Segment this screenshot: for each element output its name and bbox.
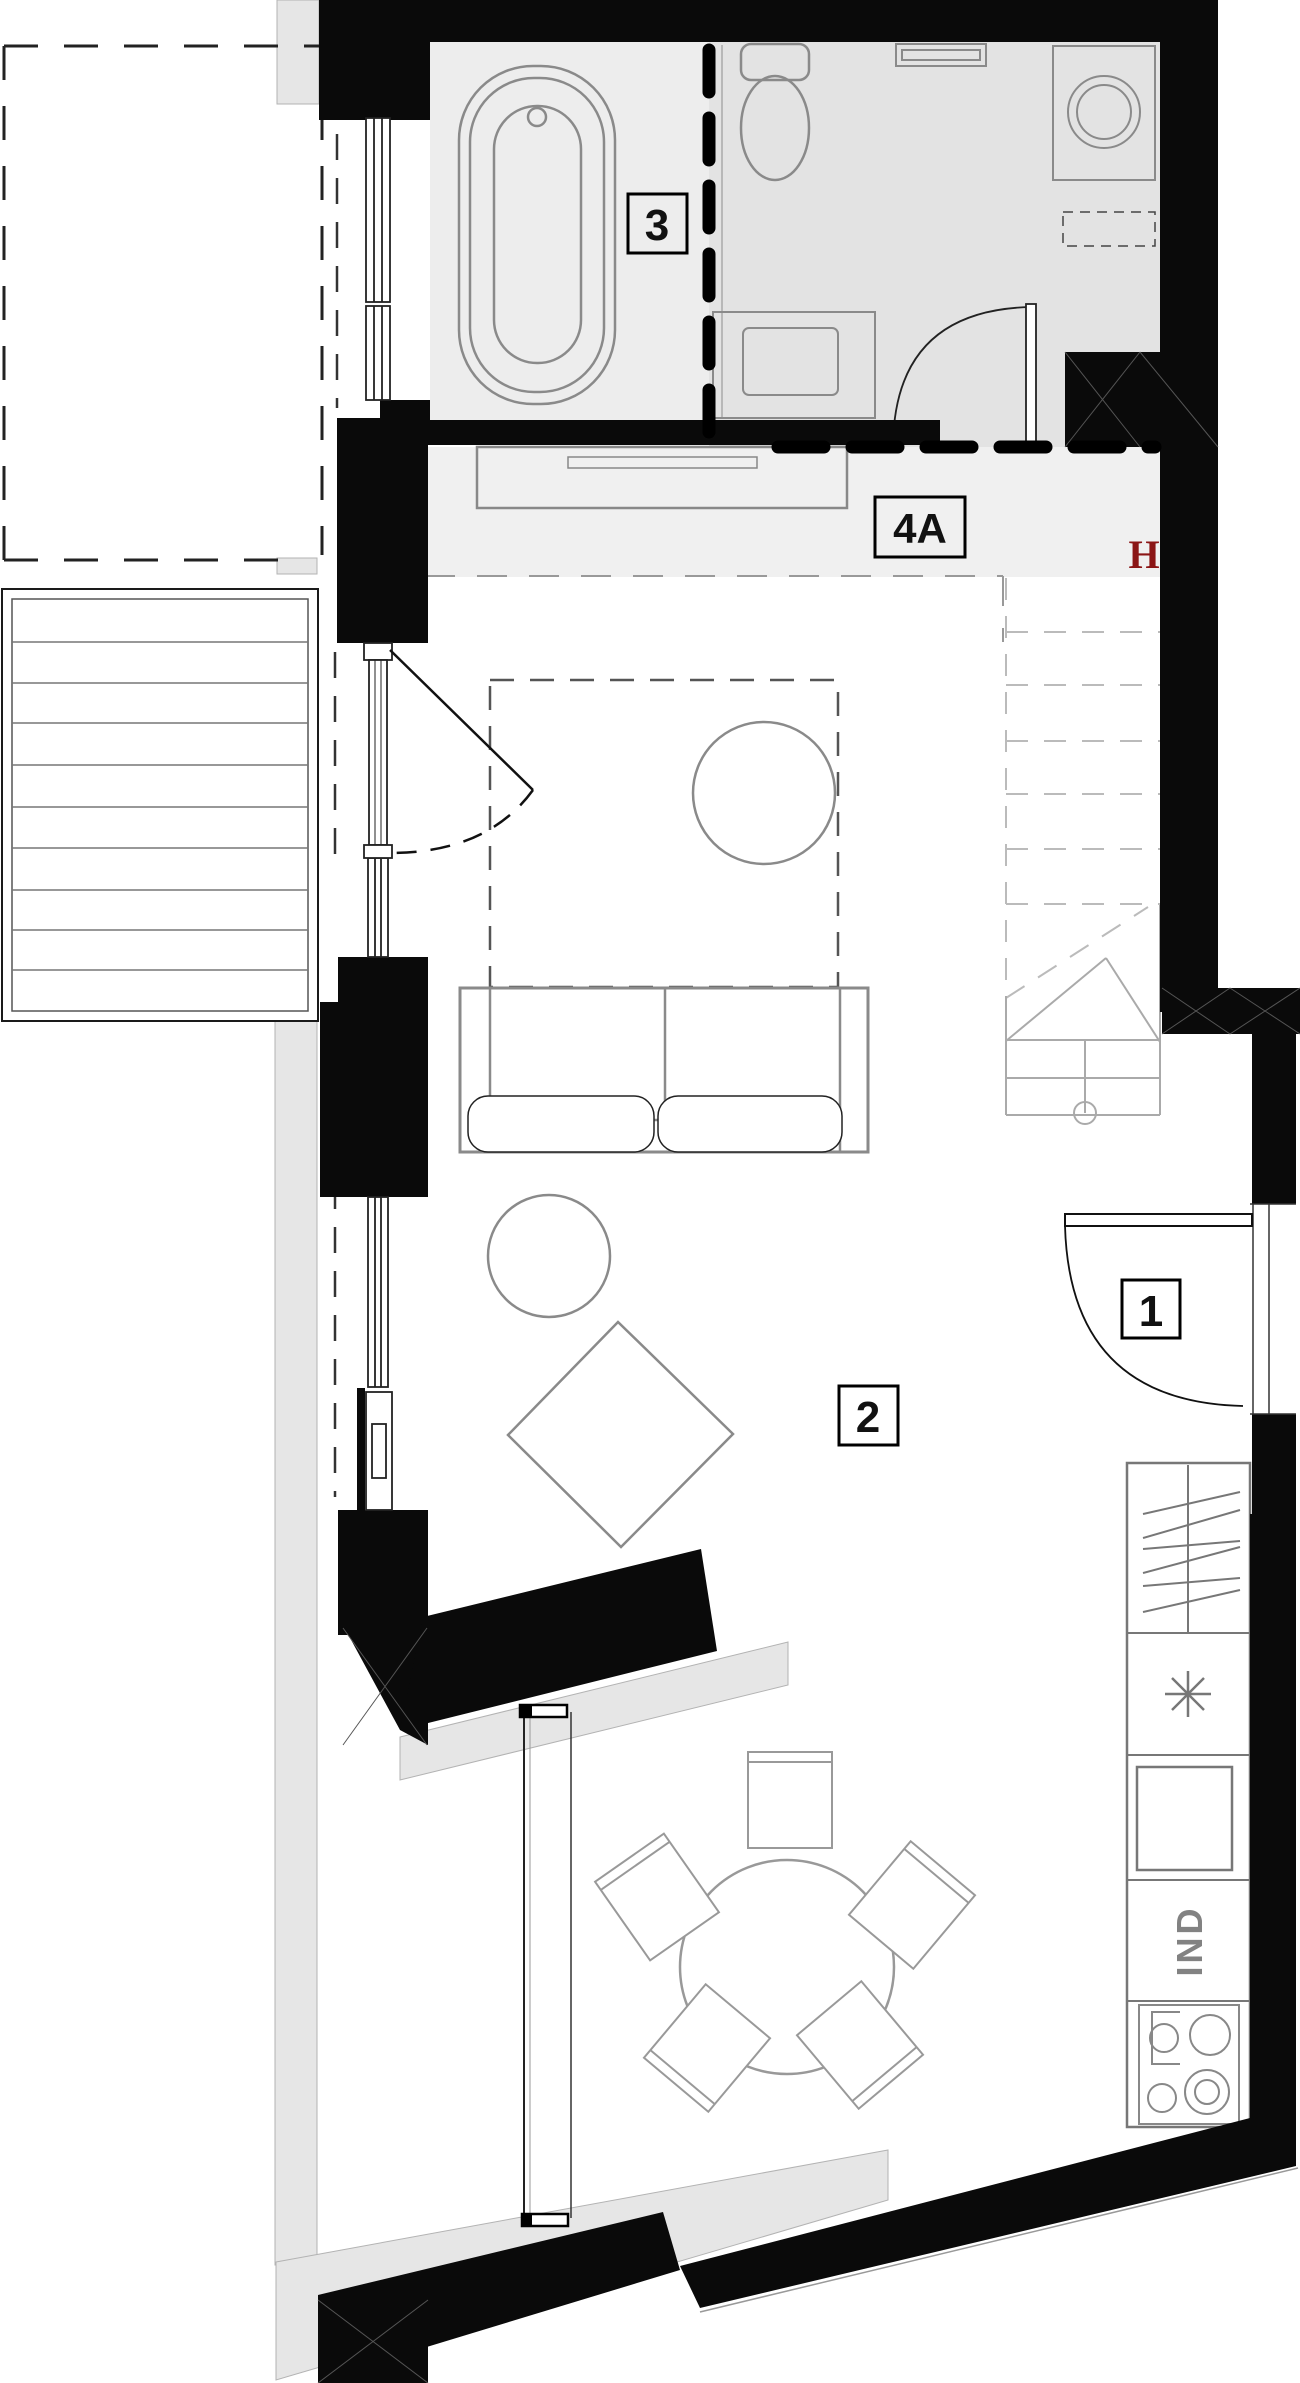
balcony-door-arc [390, 790, 533, 853]
side-table-round [488, 1195, 610, 1317]
sofa [460, 988, 868, 1152]
facade-dashed-lines [335, 90, 337, 1497]
dining-chair [797, 1981, 923, 2109]
floor-plan-drawing: IND [0, 0, 1300, 2383]
window-icon [366, 306, 390, 400]
entrance-door-leaf [1065, 1214, 1252, 1226]
coffee-table-round [693, 722, 835, 864]
window-icon [366, 118, 390, 302]
balcony-door [364, 643, 533, 858]
window-icon [368, 858, 388, 957]
floor-plan: IND [0, 0, 1300, 2383]
hallway-floor [425, 447, 1162, 577]
dining-chair [748, 1752, 832, 1848]
exterior-stairs [2, 589, 318, 1021]
room-label-3: 3 [645, 201, 669, 250]
room-label-4a: 4A [893, 505, 947, 552]
dining-chair [644, 1984, 770, 2112]
room-label-1: 1 [1139, 1287, 1163, 1336]
glazing-wall [520, 1705, 571, 2226]
dining-chair [595, 1834, 719, 1961]
steel-beam-marker: H [1128, 532, 1159, 577]
balcony-door-leaf [390, 650, 533, 790]
dining-set [595, 1752, 975, 2112]
kitchen-counter: IND [1127, 1463, 1250, 2127]
wc-door-leaf [1026, 304, 1036, 445]
dining-chair [849, 1841, 975, 1969]
window-icon [368, 1197, 388, 1387]
room-label-2: 2 [856, 1393, 880, 1442]
terrace-dashed-outline [4, 46, 322, 560]
induction-hob-label: IND [1169, 1906, 1210, 1977]
coffee-table-diamond [508, 1322, 733, 1547]
